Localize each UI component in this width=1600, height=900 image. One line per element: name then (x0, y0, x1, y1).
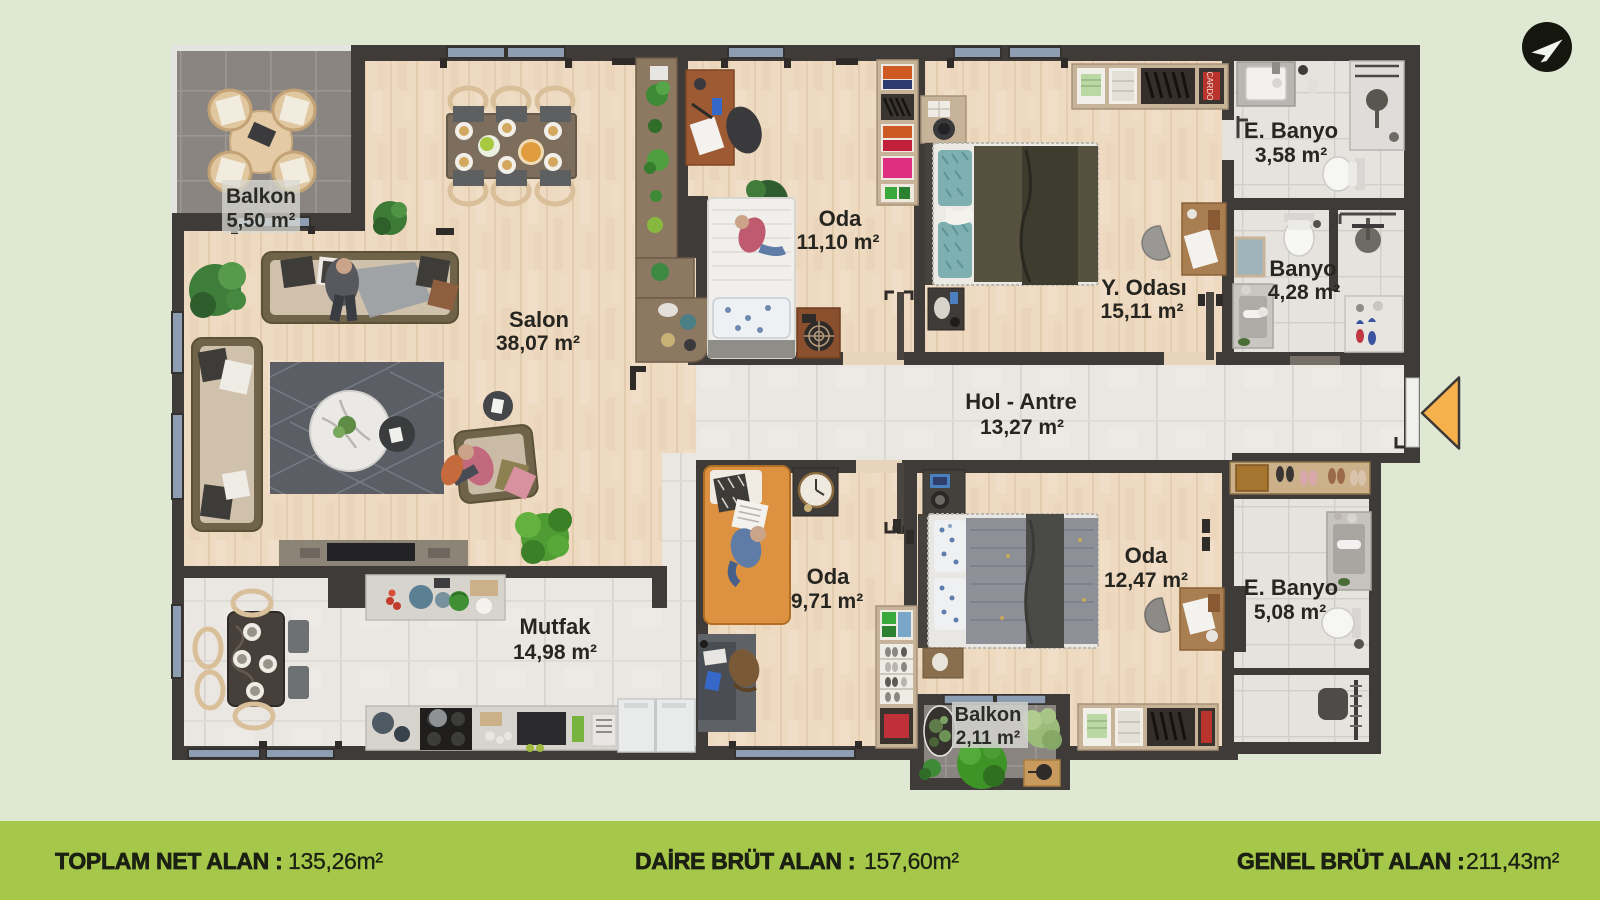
svg-text:Banyo: Banyo (1269, 256, 1336, 281)
svg-text:CARDO: CARDO (1205, 72, 1214, 101)
svg-text:157,60m²: 157,60m² (864, 848, 959, 874)
svg-text:9,71 m²: 9,71 m² (791, 590, 863, 613)
svg-text:Balkon: Balkon (955, 704, 1022, 726)
svg-text:13,27 m²: 13,27 m² (980, 416, 1064, 439)
svg-text:Oda: Oda (819, 206, 863, 231)
svg-text:3,58 m²: 3,58 m² (1255, 144, 1327, 167)
svg-text:5,08 m²: 5,08 m² (1254, 601, 1326, 624)
svg-text:Balkon: Balkon (226, 185, 296, 208)
svg-text:Hol - Antre: Hol - Antre (965, 389, 1077, 414)
svg-text:5,50 m²: 5,50 m² (227, 210, 296, 232)
svg-text:4,28 m²: 4,28 m² (1268, 281, 1340, 304)
svg-text:Oda: Oda (807, 564, 851, 589)
svg-text:Oda: Oda (1125, 543, 1169, 568)
svg-text:DAİRE BRÜT ALAN :: DAİRE BRÜT ALAN : (635, 848, 855, 874)
svg-text:12,47 m²: 12,47 m² (1104, 569, 1188, 592)
svg-text:Mutfak: Mutfak (520, 614, 592, 639)
svg-text:E. Banyo: E. Banyo (1244, 575, 1338, 600)
svg-text:2,11 m²: 2,11 m² (956, 728, 1020, 749)
svg-text:TOPLAM NET ALAN :: TOPLAM NET ALAN : (55, 848, 282, 874)
svg-text:E. Banyo: E. Banyo (1244, 118, 1338, 143)
svg-text:Y. Odası: Y. Odası (1101, 275, 1187, 300)
svg-text:14,98 m²: 14,98 m² (513, 641, 597, 664)
svg-text:11,10 m²: 11,10 m² (797, 231, 880, 254)
svg-text:GENEL BRÜT ALAN :: GENEL BRÜT ALAN : (1237, 848, 1464, 874)
svg-text:211,43m²: 211,43m² (1466, 848, 1560, 874)
svg-text:38,07 m²: 38,07 m² (496, 332, 580, 355)
svg-text:15,11 m²: 15,11 m² (1101, 300, 1184, 323)
svg-text:Salon: Salon (509, 307, 569, 332)
svg-text:135,26m²: 135,26m² (288, 848, 383, 874)
